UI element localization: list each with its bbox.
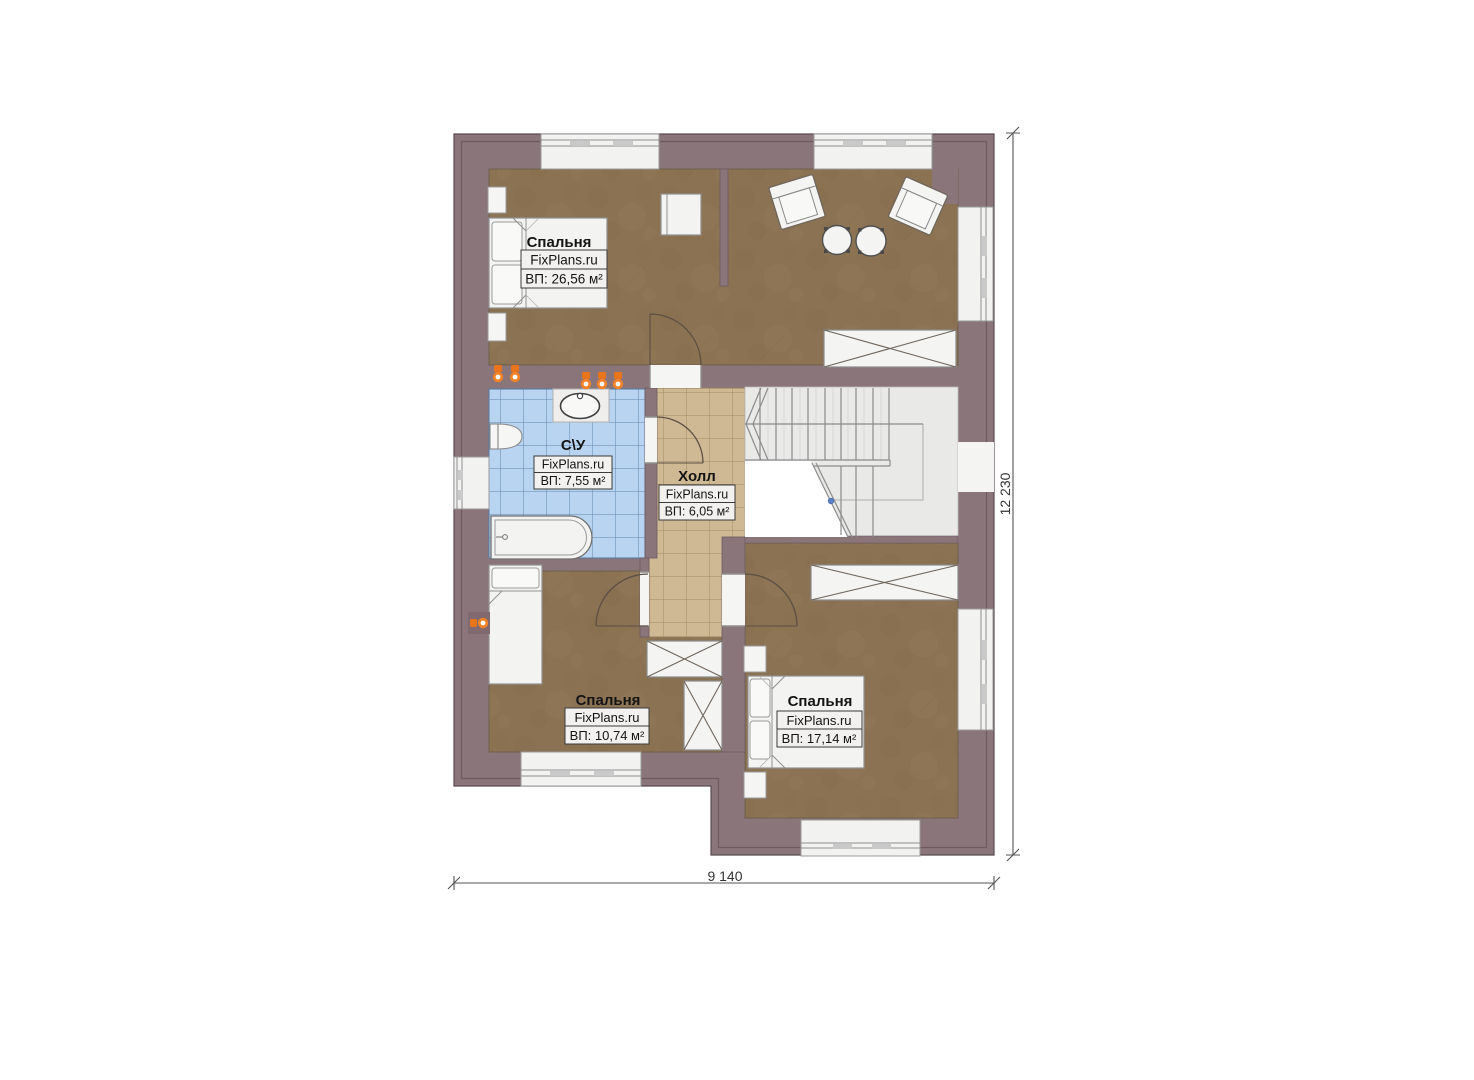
svg-text:FixPlans.ru: FixPlans.ru [786,713,851,728]
svg-text:FixPlans.ru: FixPlans.ru [542,458,605,472]
svg-text:ВП: 6,05 м²: ВП: 6,05 м² [665,505,730,519]
svg-text:Холл: Холл [678,468,716,485]
svg-text:Спальня: Спальня [576,692,641,709]
svg-text:9 140: 9 140 [707,868,742,884]
svg-text:Спальня: Спальня [527,234,592,251]
svg-text:FixPlans.ru: FixPlans.ru [574,710,639,725]
svg-text:ВП: 10,74 м²: ВП: 10,74 м² [570,728,645,743]
svg-text:ВП: 26,56 м²: ВП: 26,56 м² [525,272,603,287]
svg-text:ВП: 17,14 м²: ВП: 17,14 м² [782,731,857,746]
svg-text:ВП: 7,55 м²: ВП: 7,55 м² [541,474,606,488]
svg-text:12 230: 12 230 [997,472,1013,515]
svg-text:FixPlans.ru: FixPlans.ru [530,253,598,268]
svg-text:Спальня: Спальня [788,693,853,710]
svg-text:FixPlans.ru: FixPlans.ru [666,488,729,502]
svg-text:С\У: С\У [561,437,586,454]
